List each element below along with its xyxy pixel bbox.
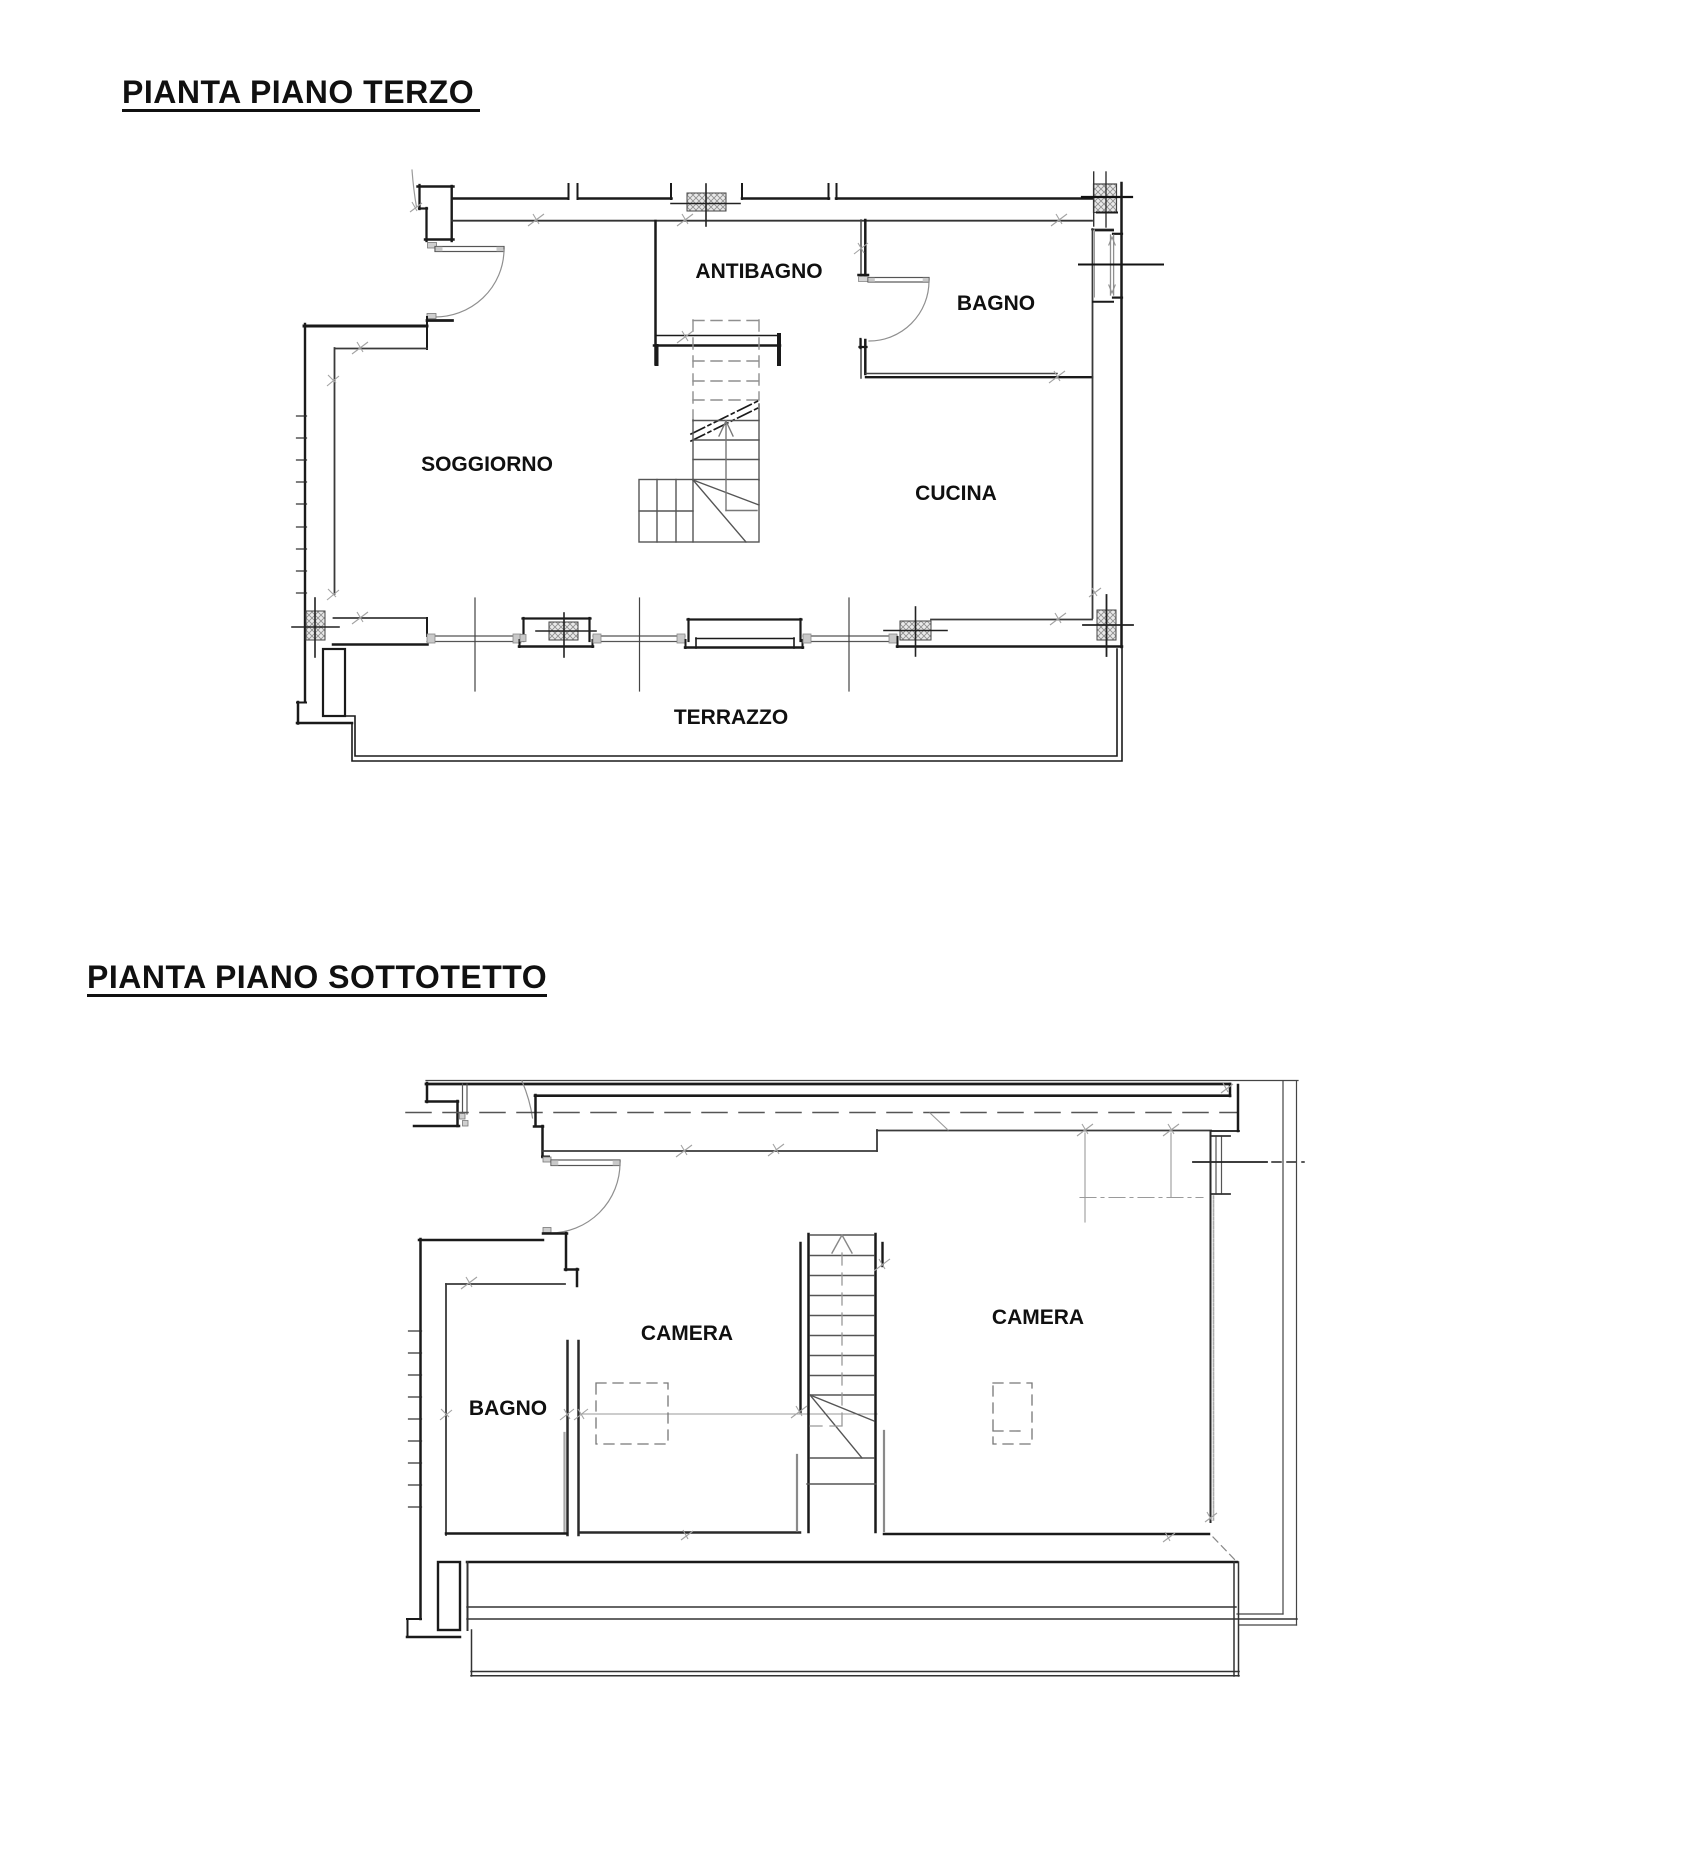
svg-text:BAGNO: BAGNO bbox=[957, 292, 1035, 315]
svg-text:SOGGIORNO: SOGGIORNO bbox=[421, 453, 553, 476]
svg-text:ANTIBAGNO: ANTIBAGNO bbox=[695, 260, 822, 283]
svg-text:BAGNO: BAGNO bbox=[469, 1397, 547, 1420]
svg-text:CAMERA: CAMERA bbox=[641, 1322, 733, 1345]
svg-text:PIANTA PIANO TERZO: PIANTA PIANO TERZO bbox=[122, 74, 474, 110]
svg-text:PIANTA PIANO SOTTOTETTO: PIANTA PIANO SOTTOTETTO bbox=[87, 959, 547, 995]
svg-text:CUCINA: CUCINA bbox=[915, 482, 997, 505]
svg-text:CAMERA: CAMERA bbox=[992, 1306, 1084, 1329]
svg-text:TERRAZZO: TERRAZZO bbox=[674, 706, 788, 729]
